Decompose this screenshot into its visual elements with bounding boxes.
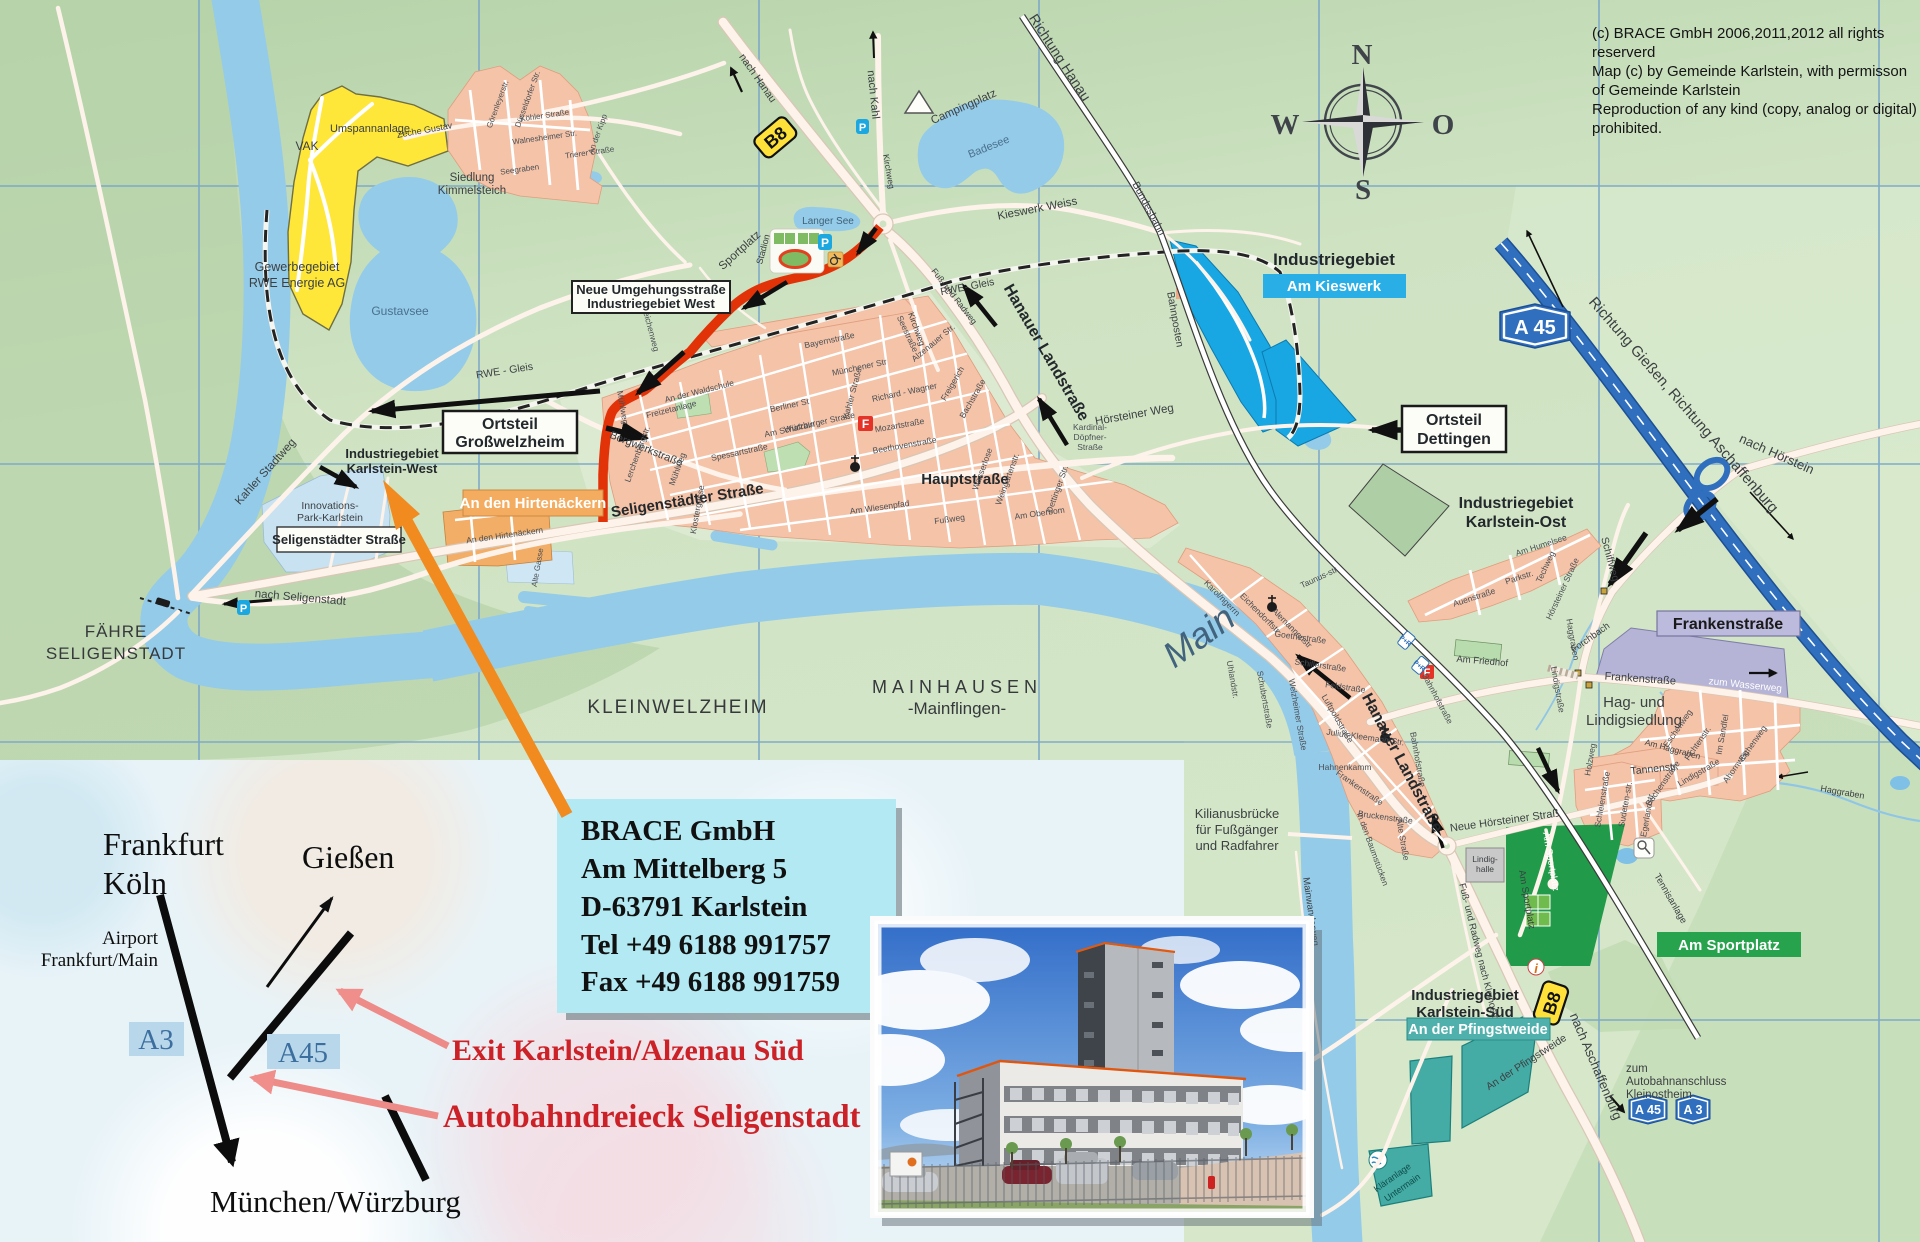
svg-text:Industriegebiet: Industriegebiet: [1273, 250, 1395, 269]
svg-text:A 45: A 45: [1635, 1103, 1661, 1117]
svg-text:P: P: [240, 603, 247, 615]
svg-text:Tel +49 6188 991757: Tel +49 6188 991757: [581, 929, 831, 961]
svg-text:Straße: Straße: [1077, 442, 1103, 452]
svg-text:F: F: [862, 417, 869, 431]
svg-text:of Gemeinde Karlstein: of Gemeinde Karlstein: [1592, 82, 1740, 99]
svg-text:Frankenstraße: Frankenstraße: [1673, 616, 1783, 633]
svg-text:Gewerbegebiet: Gewerbegebiet: [255, 260, 340, 274]
svg-text:Hauptstraße: Hauptstraße: [921, 471, 1009, 488]
svg-text:Langer See: Langer See: [802, 216, 854, 227]
svg-text:Airport: Airport: [102, 928, 159, 949]
svg-text:Kardinal-: Kardinal-: [1073, 422, 1107, 432]
svg-text:S: S: [1355, 174, 1371, 206]
svg-text:zum: zum: [1626, 1063, 1648, 1075]
svg-text:A3: A3: [138, 1024, 173, 1056]
svg-text:Autobahnanschluss: Autobahnanschluss: [1626, 1076, 1727, 1088]
svg-text:Neue Umgehungsstraße: Neue Umgehungsstraße: [576, 282, 726, 297]
svg-text:i: i: [1534, 961, 1538, 976]
svg-text:(c) BRACE GmbH 2006,2011,2012: (c) BRACE GmbH 2006,2011,2012 all rights: [1592, 25, 1884, 42]
svg-text:Karlstein-Ost: Karlstein-Ost: [1466, 514, 1567, 531]
svg-text:P: P: [859, 122, 866, 134]
svg-text:Kilianusbrücke: Kilianusbrücke: [1195, 806, 1280, 821]
svg-text:Innovations-: Innovations-: [301, 500, 359, 512]
svg-text:BRACE GmbH: BRACE GmbH: [581, 815, 776, 847]
svg-text:Dettingen: Dettingen: [1417, 431, 1491, 448]
svg-text:Gießen: Gießen: [302, 839, 394, 875]
svg-text:P: P: [821, 236, 829, 250]
svg-text:Großwelzheim: Großwelzheim: [455, 434, 564, 451]
svg-text:Karlstein-West: Karlstein-West: [347, 461, 438, 476]
svg-text:N: N: [1352, 39, 1373, 71]
svg-text:Ortsteil: Ortsteil: [1426, 412, 1482, 429]
svg-text:Frankfurt: Frankfurt: [103, 826, 224, 862]
svg-text:Hag- und: Hag- und: [1603, 694, 1665, 711]
svg-text:halle: halle: [1476, 864, 1494, 874]
svg-text:Am Mittelberg 5: Am Mittelberg 5: [581, 853, 787, 885]
svg-text:Kimmelsteich: Kimmelsteich: [438, 185, 506, 197]
svg-text:Gustavsee: Gustavsee: [371, 304, 429, 318]
svg-text:Siedlung: Siedlung: [450, 172, 495, 184]
svg-text:Ortsteil: Ortsteil: [482, 416, 538, 433]
svg-text:Autobahndreieck Seligenstadt: Autobahndreieck Seligenstadt: [443, 1099, 861, 1135]
svg-text:Fax +49 6188 991759: Fax +49 6188 991759: [581, 966, 840, 998]
svg-text:Frankfurt/Main: Frankfurt/Main: [41, 950, 159, 971]
svg-text:Lindig-: Lindig-: [1472, 854, 1498, 864]
svg-text:Park-Karlstein: Park-Karlstein: [297, 512, 363, 524]
svg-text:Industriegebiet: Industriegebiet: [1411, 987, 1519, 1004]
svg-text:reserverd: reserverd: [1592, 44, 1655, 61]
svg-text:Industriegebiet West: Industriegebiet West: [587, 296, 715, 311]
svg-text:Kleinostheim: Kleinostheim: [1626, 1089, 1692, 1101]
svg-text:und Radfahrer: und Radfahrer: [1195, 838, 1279, 853]
svg-text:prohibited.: prohibited.: [1592, 120, 1662, 137]
svg-text:München/Würzburg: München/Würzburg: [210, 1184, 461, 1219]
svg-text:W: W: [1271, 109, 1300, 141]
svg-text:Köln: Köln: [103, 865, 167, 901]
svg-text:RWE Energie AG: RWE Energie AG: [249, 276, 345, 290]
svg-text:An der Pfingstweide: An der Pfingstweide: [1408, 1022, 1547, 1038]
svg-text:Reproduction of any kind (copy: Reproduction of any kind (copy, analog o…: [1592, 101, 1917, 118]
svg-text:O: O: [1432, 109, 1455, 141]
svg-text:Seligenstädter Straße: Seligenstädter Straße: [272, 532, 406, 547]
svg-text:Döpfner-: Döpfner-: [1073, 432, 1106, 442]
svg-text:Industriegebiet: Industriegebiet: [1459, 495, 1574, 512]
svg-text:A45: A45: [278, 1037, 328, 1069]
svg-text:VAK: VAK: [295, 139, 318, 153]
svg-text:A 3: A 3: [1684, 1103, 1703, 1117]
svg-text:Industriegebiet: Industriegebiet: [345, 446, 439, 461]
svg-text:A 45: A 45: [1514, 317, 1556, 339]
svg-text:Map (c) by Gemeinde Karlstein,: Map (c) by Gemeinde Karlstein, with perm…: [1592, 63, 1907, 80]
svg-text:An den Hirtenäckern: An den Hirtenäckern: [460, 495, 607, 512]
svg-text:für Fußgänger: für Fußgänger: [1196, 822, 1279, 837]
svg-text:D-63791 Karlstein: D-63791 Karlstein: [581, 891, 807, 923]
svg-text:-Mainflingen-: -Mainflingen-: [908, 699, 1006, 718]
svg-text:Lindigsiedlung: Lindigsiedlung: [1586, 712, 1682, 729]
svg-text:Am Kieswerk: Am Kieswerk: [1287, 278, 1382, 295]
svg-text:MAINHAUSEN: MAINHAUSEN: [872, 677, 1042, 697]
svg-text:KLEINWELZHEIM: KLEINWELZHEIM: [587, 697, 768, 718]
svg-text:FÄHRE: FÄHRE: [85, 622, 148, 641]
svg-text:SELIGENSTADT: SELIGENSTADT: [46, 644, 186, 663]
svg-text:Exit Karlstein/Alzenau Süd: Exit Karlstein/Alzenau Süd: [452, 1034, 804, 1067]
svg-text:Am Sportplatz: Am Sportplatz: [1678, 937, 1780, 954]
